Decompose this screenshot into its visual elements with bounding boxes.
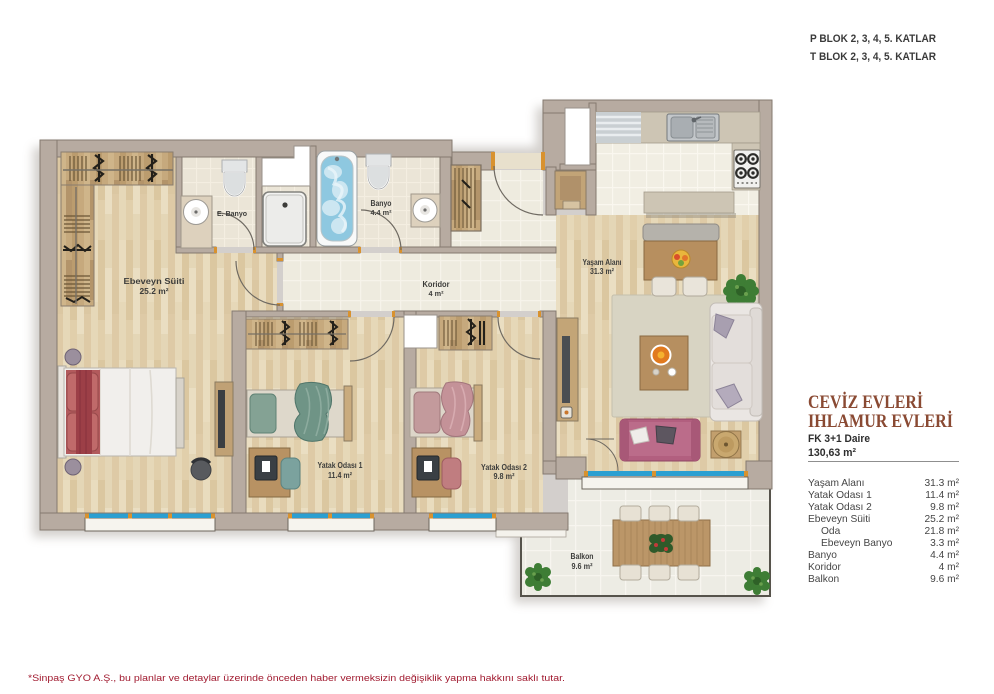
- svg-text:4.4 m²: 4.4 m²: [930, 550, 959, 561]
- svg-text:Balkon: Balkon: [571, 551, 594, 561]
- svg-text:21.8 m²: 21.8 m²: [924, 526, 959, 537]
- svg-text:FK 3+1 Daire: FK 3+1 Daire: [808, 433, 870, 445]
- svg-text:Yatak Odası 2: Yatak Odası 2: [808, 502, 872, 513]
- svg-text:Koridor: Koridor: [423, 280, 450, 289]
- svg-text:Banyo: Banyo: [371, 199, 392, 208]
- svg-text:4.4 m²: 4.4 m²: [371, 208, 392, 217]
- svg-text:11.4 m²: 11.4 m²: [328, 471, 352, 480]
- svg-text:Yaşam Alanı: Yaşam Alanı: [583, 257, 622, 267]
- svg-text:Ebeveyn Süiti: Ebeveyn Süiti: [808, 514, 870, 525]
- svg-text:IHLAMUR EVLERİ: IHLAMUR EVLERİ: [808, 411, 953, 432]
- svg-text:9.6 m²: 9.6 m²: [572, 562, 593, 571]
- svg-text:Yatak Odası 1: Yatak Odası 1: [318, 460, 363, 470]
- svg-text:130,63 m²: 130,63 m²: [808, 447, 856, 459]
- svg-text:*Sinpaş GYO A.Ş., bu planlar v: *Sinpaş GYO A.Ş., bu planlar ve detaylar…: [28, 673, 565, 684]
- svg-text:11.4 m²: 11.4 m²: [925, 490, 959, 501]
- svg-text:Yaşam Alanı: Yaşam Alanı: [808, 478, 864, 489]
- svg-text:Yatak Odası 1: Yatak Odası 1: [808, 490, 872, 501]
- svg-text:4 m²: 4 m²: [429, 289, 444, 298]
- svg-text:CEVİZ EVLERİ: CEVİZ EVLERİ: [808, 392, 923, 413]
- svg-text:Oda: Oda: [821, 526, 841, 537]
- svg-text:25.2 m²: 25.2 m²: [924, 514, 959, 525]
- svg-text:T BLOK 2, 3, 4, 5. KATLAR: T BLOK 2, 3, 4, 5. KATLAR: [810, 51, 936, 63]
- svg-text:3.3 m²: 3.3 m²: [930, 538, 959, 549]
- svg-text:9.6 m²: 9.6 m²: [930, 574, 959, 585]
- svg-text:Ebeveyn Süiti: Ebeveyn Süiti: [124, 276, 185, 286]
- svg-text:31.3 m²: 31.3 m²: [590, 267, 614, 276]
- svg-text:9.8 m²: 9.8 m²: [930, 502, 959, 513]
- svg-text:P BLOK 2, 3, 4, 5. KATLAR: P BLOK 2, 3, 4, 5. KATLAR: [810, 33, 936, 45]
- svg-text:31.3 m²: 31.3 m²: [924, 478, 959, 489]
- svg-text:Yatak Odası 2: Yatak Odası 2: [481, 462, 527, 472]
- svg-text:25.2 m²: 25.2 m²: [140, 287, 169, 296]
- svg-text:4 m²: 4 m²: [939, 562, 960, 573]
- svg-text:E. Banyo: E. Banyo: [217, 209, 247, 218]
- svg-text:Koridor: Koridor: [808, 562, 841, 573]
- svg-text:Ebeveyn Banyo: Ebeveyn Banyo: [821, 538, 893, 549]
- svg-text:Balkon: Balkon: [808, 574, 839, 585]
- svg-text:Banyo: Banyo: [808, 550, 837, 561]
- svg-text:9.8 m²: 9.8 m²: [494, 472, 515, 481]
